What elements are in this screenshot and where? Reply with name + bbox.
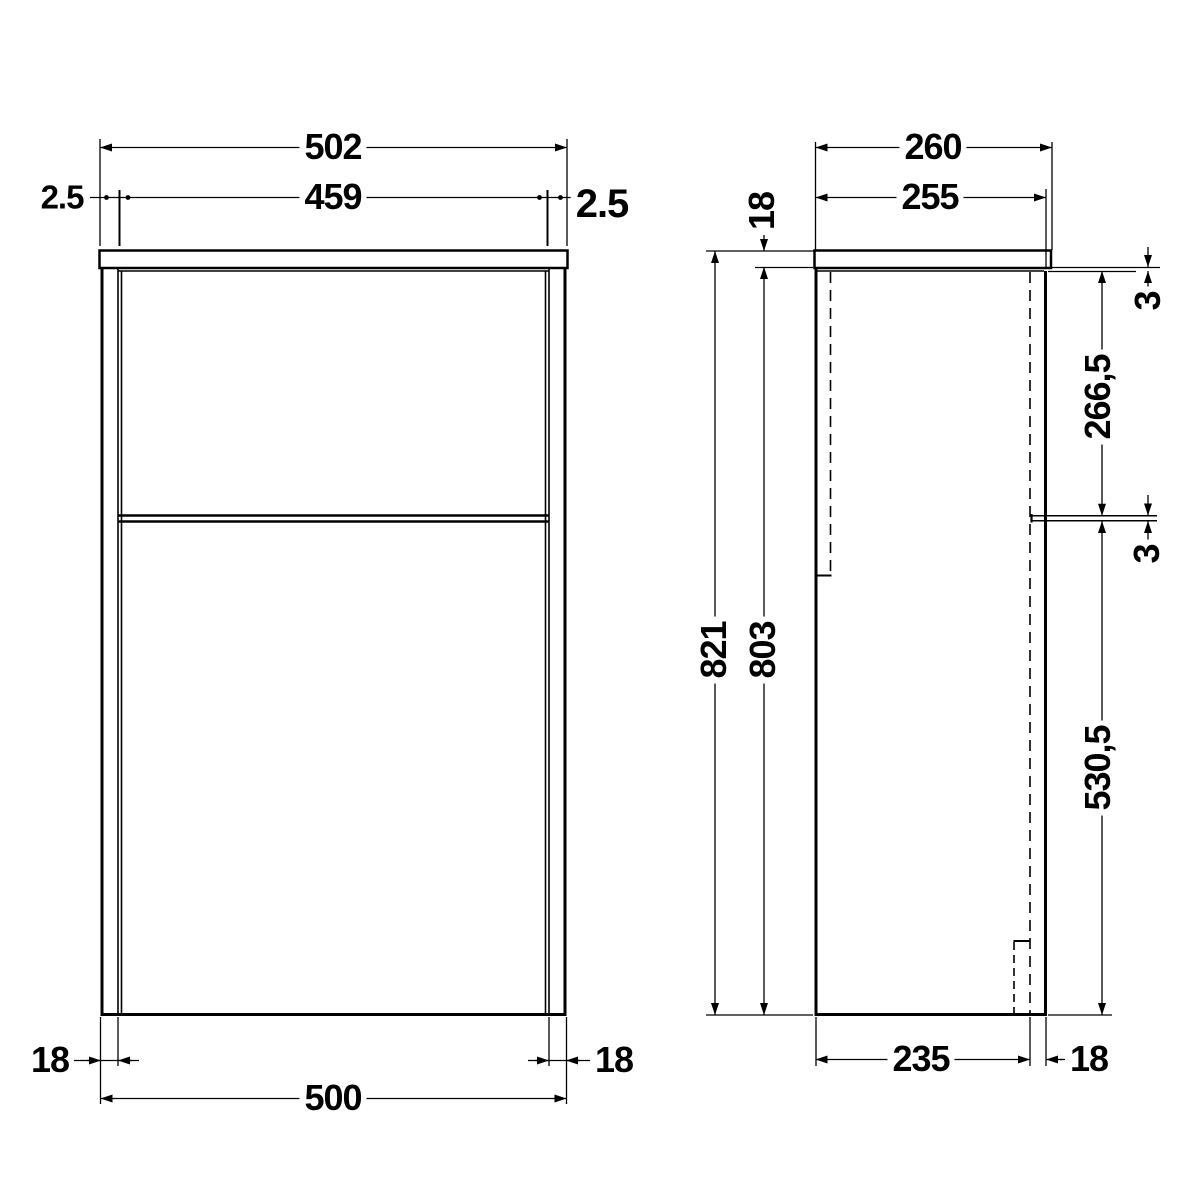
technical-drawing-canvas: 502 459 2.5 2.5 18 18 500 260 255 18 821…: [0, 0, 1200, 1200]
side-view-dimensions: [706, 142, 1160, 1066]
side-front-depth-label: 255: [896, 178, 963, 216]
front-panel-right-label: 18: [590, 1041, 638, 1079]
front-countertop-width-label: 502: [299, 128, 366, 166]
side-middle-gap-label: 3: [1128, 539, 1166, 568]
side-countertop: [815, 251, 1052, 269]
drawing-linework: [0, 0, 1200, 1200]
side-total-height-label: 821: [695, 616, 733, 683]
side-door-thickness-label: 18: [1065, 1040, 1113, 1078]
front-countertop: [100, 251, 568, 269]
side-carcass-height-label: 803: [744, 616, 782, 683]
side-lower-panel-label: 530,5: [1079, 720, 1117, 815]
front-cabinet-width-label: 500: [299, 1079, 366, 1117]
side-upper-panel-label: 266,5: [1079, 349, 1117, 444]
side-top-gap-label: 3: [1129, 286, 1167, 315]
front-gap-left-label: 2.5: [36, 180, 89, 215]
front-view-dimensions: [70, 139, 597, 1104]
front-gap-right-label: 2.5: [571, 183, 634, 225]
front-door-width-label: 459: [299, 178, 366, 216]
front-panel-left-label: 18: [26, 1041, 74, 1079]
front-view-outline: [100, 251, 568, 1017]
side-countertop-thickness-label: 18: [743, 187, 781, 235]
side-carcass-depth-label: 235: [887, 1040, 954, 1078]
side-countertop-depth-label: 260: [899, 128, 966, 166]
